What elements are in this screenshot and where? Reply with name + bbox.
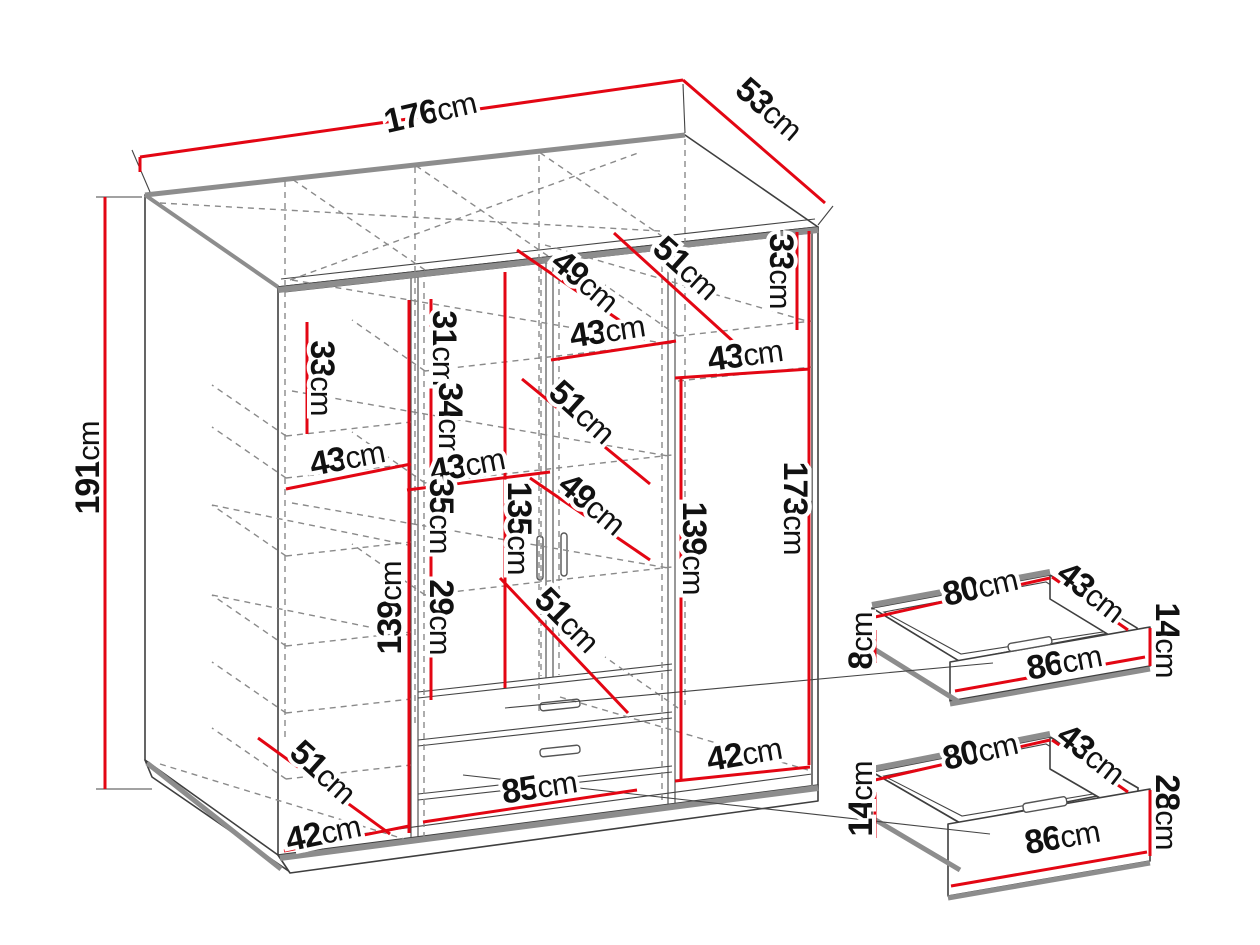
right-door-handle [561, 533, 567, 576]
dim-label-overall-width: 176cm [380, 83, 479, 141]
dim-label-top-drawer-back-height: 8cm [842, 612, 880, 669]
ext-depth-right [818, 206, 833, 225]
dim-label-right-top-compartment-height: 33cm [762, 233, 800, 308]
dim-label-top-drawer-front-height: 14cm [1148, 602, 1186, 677]
dim-label-bottom-drawer-back-height: 14cm [842, 761, 880, 836]
dim-label-center-interior-height: 135cm [500, 481, 538, 574]
diagram-page: 176cm53cm191cm33cm43cm51cm42cm31cm34cm43… [0, 0, 1260, 945]
dim-label-shelf-gap-29: 29cm [422, 579, 460, 654]
hidden-line-24 [212, 662, 286, 713]
dim-label-left-column-height: 139cm [371, 561, 409, 654]
dim-label-shelf-gap-34: 34cm [431, 382, 469, 457]
dim-label-right-inner-height: 139cm [675, 501, 713, 594]
dim-label-shelf-gap-35: 35cm [422, 478, 460, 553]
dim-label-overall-depth: 53cm [728, 70, 810, 148]
wardrobe-dimension-diagram: 176cm53cm191cm33cm43cm51cm42cm31cm34cm43… [0, 0, 1260, 945]
left-door-handle [537, 536, 543, 580]
dim-label-right-door-height: 173cm [776, 461, 814, 554]
ext-apex [683, 84, 685, 133]
shadow-edge-4 [147, 763, 281, 869]
dim-label-overall-height: 191cm [69, 421, 107, 514]
hidden-line-16 [212, 427, 286, 478]
hidden-line-26 [212, 728, 286, 779]
dim-label-left-top-compartment-height: 33cm [303, 340, 341, 415]
dim-label-shelf-gap-31: 31cm [425, 310, 463, 385]
dim-label-bottom-drawer-front-height: 28cm [1148, 774, 1186, 849]
hidden-line-14 [212, 385, 286, 436]
